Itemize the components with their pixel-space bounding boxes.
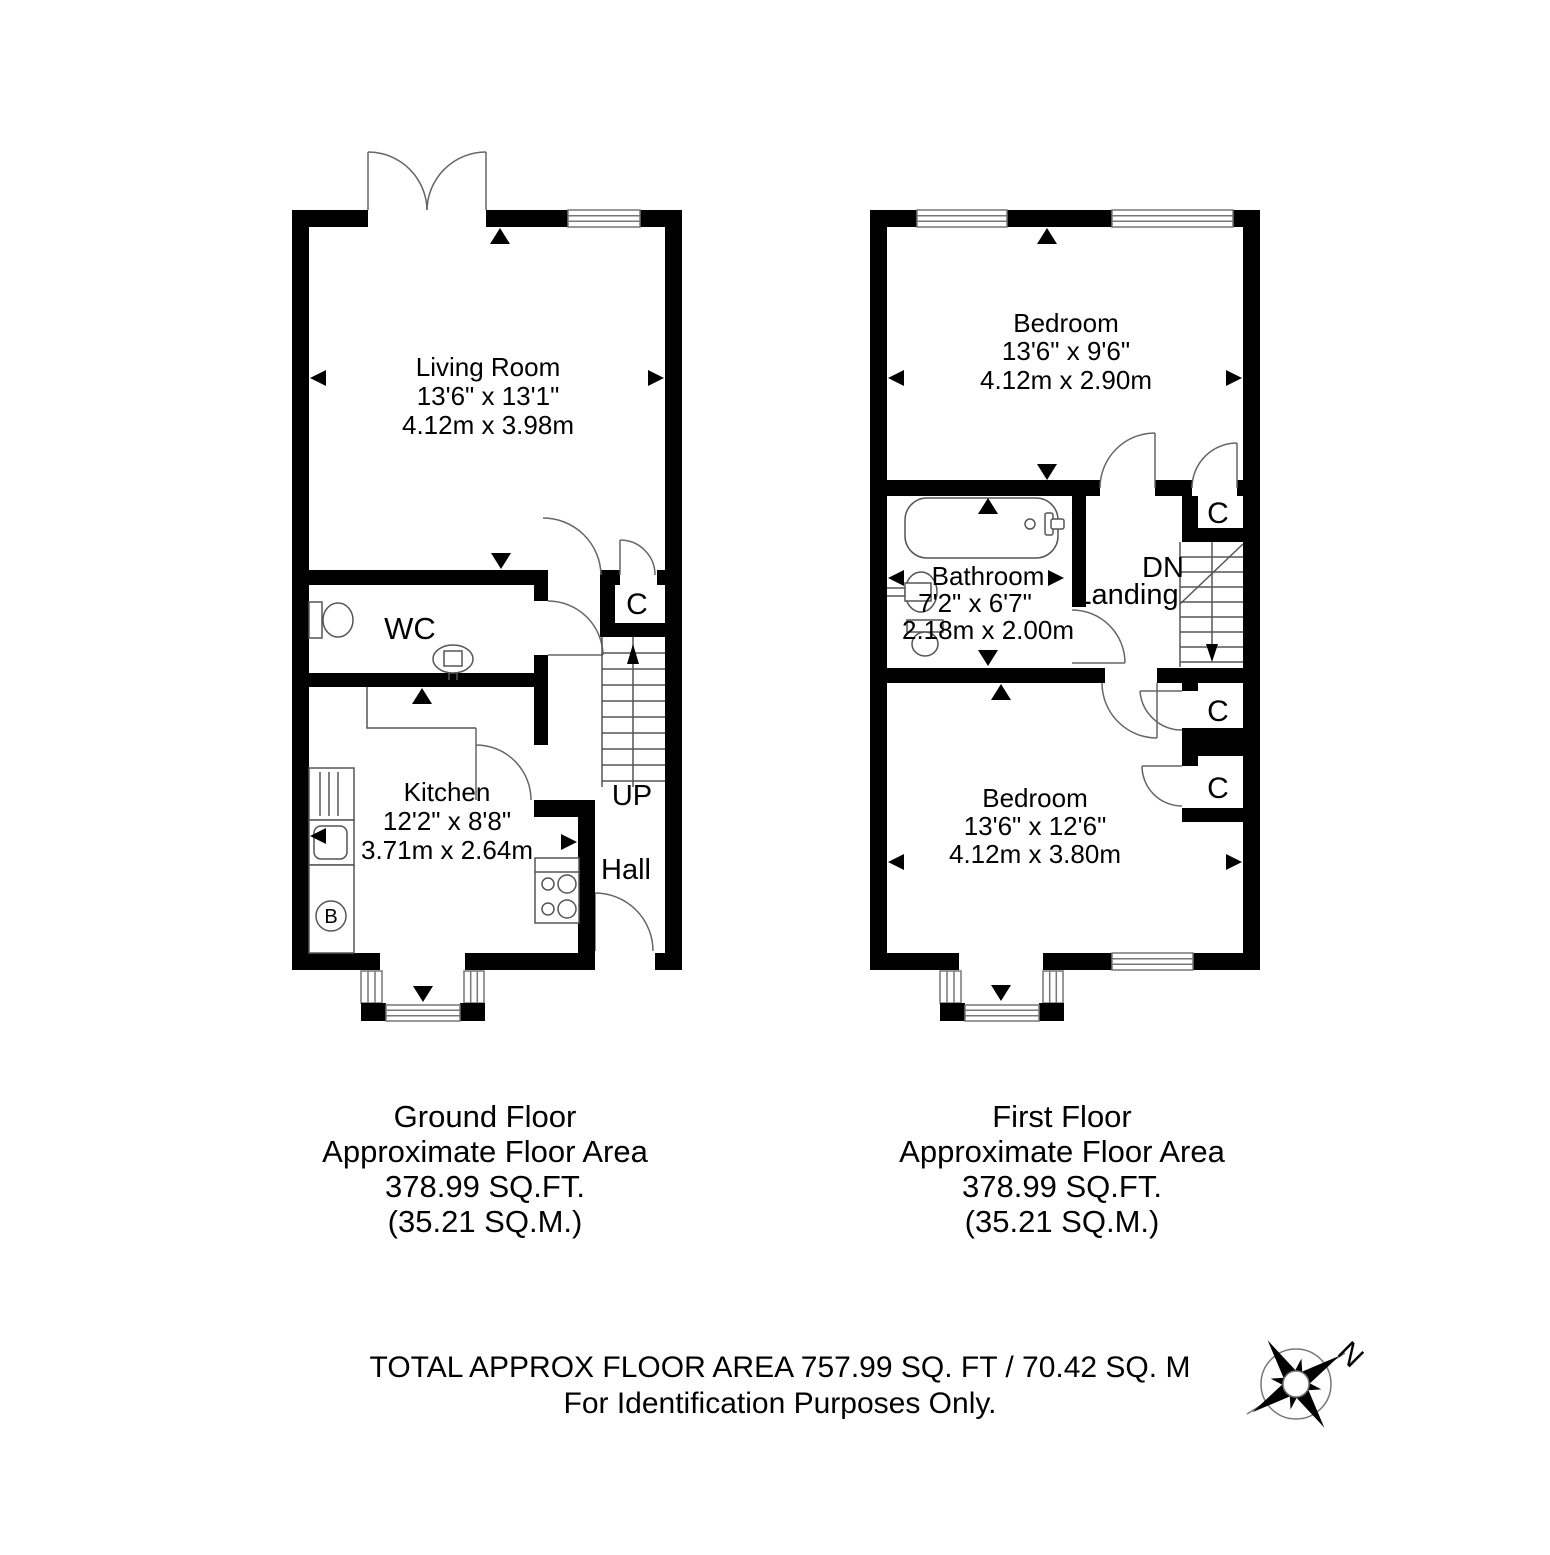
bedroom-front-dim-imperial: 13'6" x 9'6" <box>1002 336 1130 366</box>
ff-cupboard3-label: C <box>1207 772 1229 805</box>
gf-living-room-label: Living Room 13'6" x 13'1" 4.12m x 3.98m <box>402 352 574 440</box>
ff-staircase <box>1180 542 1243 667</box>
footer: TOTAL APPROX FLOOR AREA 757.99 SQ. FT / … <box>370 1351 1191 1420</box>
ff-cupboard2-label: C <box>1207 695 1229 728</box>
footer-disclaimer: For Identification Purposes Only. <box>564 1387 997 1420</box>
ff-caption-title: First Floor <box>992 1099 1132 1134</box>
ff-window-top-right <box>1112 210 1233 227</box>
bedroom-back-dim-imperial: 13'6" x 12'6" <box>964 811 1107 841</box>
bedroom-back-name: Bedroom <box>982 783 1088 813</box>
gf-cupboard-door <box>620 540 655 575</box>
footer-total-area: TOTAL APPROX FLOOR AREA 757.99 SQ. FT / … <box>370 1351 1191 1384</box>
ff-window-bottom-right <box>1112 953 1193 970</box>
living-room-dim-metric: 4.12m x 3.98m <box>402 410 574 440</box>
gf-caption-sub: Approximate Floor Area <box>322 1134 648 1169</box>
gf-french-doors <box>368 152 486 210</box>
kitchen-dim-imperial: 12'2" x 8'8" <box>383 806 511 836</box>
toilet-icon <box>309 602 353 638</box>
bedroom-front-dim-metric: 4.12m x 2.90m <box>980 365 1152 395</box>
gf-caption-title: Ground Floor <box>394 1099 577 1134</box>
ff-cupboard1-door <box>1192 443 1237 488</box>
ff-bedroom-front-label: Bedroom 13'6" x 9'6" 4.12m x 2.90m <box>980 308 1152 395</box>
ff-landing-label: Landing <box>1075 579 1178 611</box>
ff-bedroom-back-label: Bedroom 13'6" x 12'6" 4.12m x 3.80m <box>949 783 1121 869</box>
ff-caption-sub: Approximate Floor Area <box>899 1134 1225 1169</box>
cooker-icon <box>535 858 579 923</box>
ff-cupboard3-door <box>1142 766 1182 806</box>
bathroom-dim-metric: 2.18m x 2.00m <box>902 615 1074 645</box>
ff-stairs-down-arrow-icon <box>1206 644 1218 662</box>
gf-caption-sqft: 378.99 SQ.FT. <box>385 1169 585 1204</box>
kitchen-name: Kitchen <box>404 777 491 807</box>
kitchen-dim-metric: 3.71m x 2.64m <box>361 835 533 865</box>
ff-cupboard1-label: C <box>1207 497 1229 530</box>
ff-bathroom-door <box>1072 610 1125 663</box>
floorplan-page: B Living Room 13'6" x 13'1" 4.12m x 3.98… <box>0 0 1550 1550</box>
gf-hall-door <box>543 518 601 575</box>
gf-front-door <box>595 893 653 951</box>
gf-kitchen-label: Kitchen 12'2" x 8'8" 3.71m x 2.64m <box>361 777 533 865</box>
gf-caption-sqm: (35.21 SQ.M.) <box>388 1204 583 1239</box>
gf-caption: Ground Floor Approximate Floor Area 378.… <box>322 1099 648 1239</box>
living-room-name: Living Room <box>416 352 561 382</box>
bedroom-front-name: Bedroom <box>1013 308 1119 338</box>
bedroom-back-dim-metric: 4.12m x 3.80m <box>949 839 1121 869</box>
ff-caption-sqft: 378.99 SQ.FT. <box>962 1169 1162 1204</box>
bathroom-dim-imperial: 7'2" x 6'7" <box>918 588 1032 618</box>
gf-cupboard-label: C <box>626 588 648 621</box>
ff-caption-sqm: (35.21 SQ.M.) <box>965 1204 1160 1239</box>
ff-window-top-left <box>917 210 1007 227</box>
boiler-icon: B <box>316 901 346 931</box>
floor-plan-svg: B Living Room 13'6" x 13'1" 4.12m x 3.98… <box>0 0 1550 1550</box>
compass-icon: N <box>1247 1335 1370 1427</box>
living-room-dim-imperial: 13'6" x 13'1" <box>417 381 560 411</box>
ff-cupboard2-door <box>1140 691 1182 730</box>
compass-north-label: N <box>1331 1335 1370 1374</box>
gf-hall-label: Hall <box>601 854 651 886</box>
ff-caption: First Floor Approximate Floor Area 378.9… <box>899 1099 1225 1239</box>
gf-staircase <box>602 637 665 787</box>
wc-label: WC <box>384 611 436 646</box>
ff-bedroom1-door <box>1100 433 1155 488</box>
gf-window-top <box>568 210 640 227</box>
boiler-label: B <box>324 906 337 928</box>
first-floor-plan: Bedroom 13'6" x 9'6" 4.12m x 2.90m Bathr… <box>870 210 1260 1021</box>
ground-floor-plan: B Living Room 13'6" x 13'1" 4.12m x 3.98… <box>292 152 682 1021</box>
bathroom-name: Bathroom <box>932 561 1045 591</box>
gf-stairs-up-label: UP <box>612 780 652 812</box>
gf-stairs-up-arrow-icon <box>627 644 639 664</box>
gf-wc-door <box>548 601 603 655</box>
